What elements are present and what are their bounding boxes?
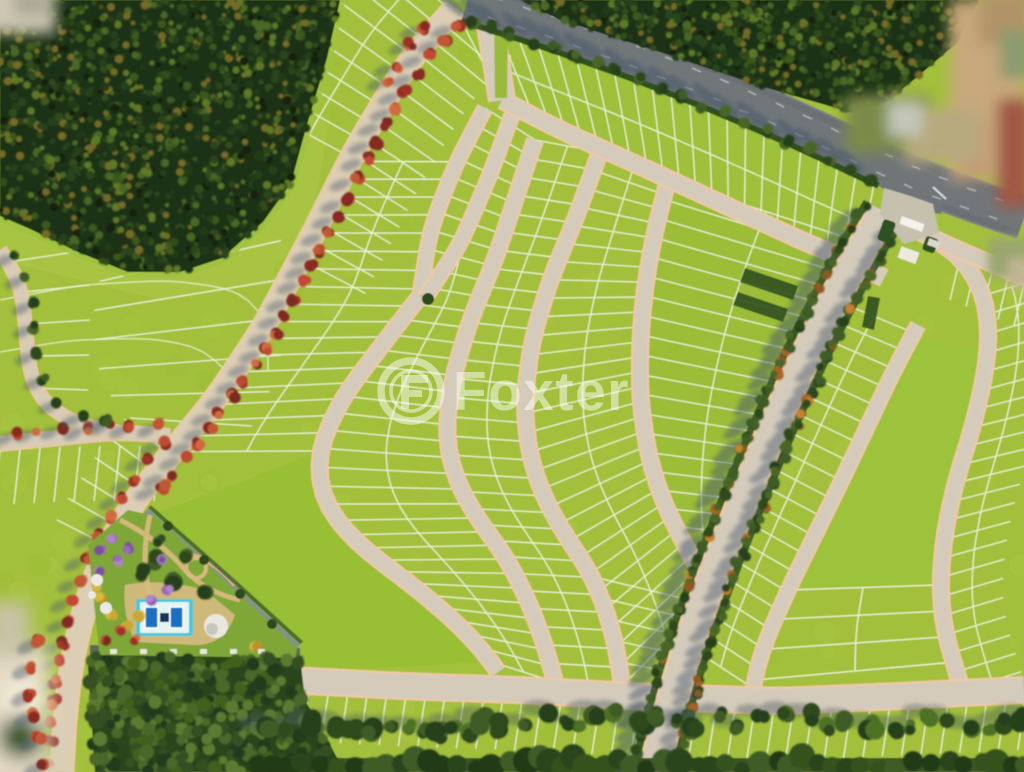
svg-text:Foxter: Foxter [453, 360, 630, 422]
